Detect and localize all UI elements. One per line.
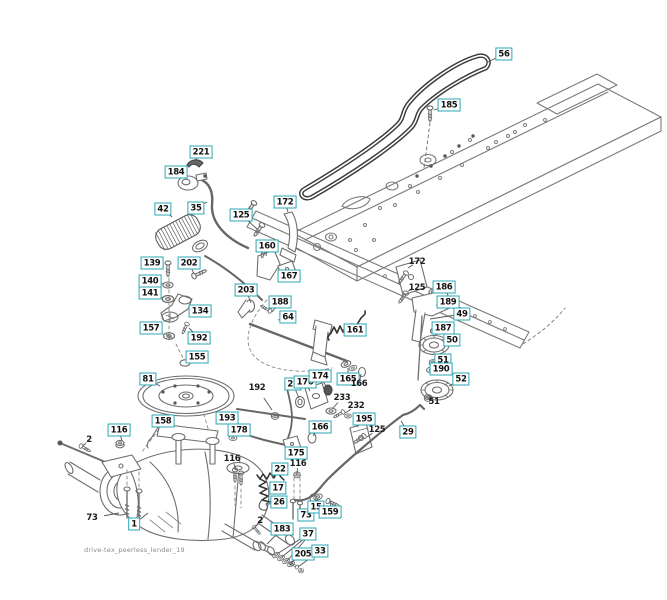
callout-192: 192 [249, 383, 266, 393]
callout-56[interactable]: 56 [495, 48, 512, 61]
callout-178[interactable]: 178 [228, 424, 251, 437]
callout-166[interactable]: 166 [309, 421, 332, 434]
callout-125[interactable]: 125 [230, 209, 253, 222]
callout-139[interactable]: 139 [141, 257, 164, 270]
callout-116[interactable]: 116 [108, 424, 131, 437]
callout-167[interactable]: 167 [278, 270, 301, 283]
callout-190[interactable]: 190 [430, 363, 453, 376]
callout-232: 232 [348, 401, 365, 411]
callout-26[interactable]: 26 [270, 496, 287, 509]
callout-125: 125 [409, 283, 426, 293]
callout-17[interactable]: 17 [269, 482, 286, 495]
callout-161[interactable]: 161 [344, 324, 367, 337]
callout-175[interactable]: 175 [285, 447, 308, 460]
callout-116: 116 [224, 454, 241, 464]
callout-81[interactable]: 81 [139, 373, 156, 386]
callout-192[interactable]: 192 [188, 332, 211, 345]
callout-157[interactable]: 157 [140, 322, 163, 335]
callout-141[interactable]: 141 [139, 287, 162, 300]
callout-160[interactable]: 160 [256, 240, 279, 253]
callout-195[interactable]: 195 [353, 413, 376, 426]
callout-33[interactable]: 33 [311, 545, 328, 558]
callout-50[interactable]: 50 [443, 334, 460, 347]
callout-203[interactable]: 203 [235, 284, 258, 297]
callout-166: 166 [351, 379, 368, 389]
callout-49[interactable]: 49 [453, 308, 470, 321]
callout-188[interactable]: 188 [269, 296, 292, 309]
callout-185[interactable]: 185 [438, 99, 461, 112]
callout-layer: 5618522118442351251721601672031886416113… [0, 0, 667, 600]
callout-1[interactable]: 1 [128, 518, 140, 531]
callout-186[interactable]: 186 [433, 281, 456, 294]
callout-184[interactable]: 184 [165, 166, 188, 179]
callout-174[interactable]: 174 [309, 370, 332, 383]
callout-29[interactable]: 29 [399, 426, 416, 439]
callout-155[interactable]: 155 [186, 351, 209, 364]
callout-2: 2 [257, 516, 263, 526]
callout-73: 73 [86, 513, 97, 523]
callout-2: 2 [86, 435, 92, 445]
callout-125: 125 [369, 425, 386, 435]
callout-64[interactable]: 64 [279, 311, 296, 324]
parts-diagram-page: 5618522118442351251721601672031886416113… [0, 0, 667, 600]
callout-159[interactable]: 159 [319, 506, 342, 519]
callout-35[interactable]: 35 [187, 202, 204, 215]
callout-134[interactable]: 134 [189, 305, 212, 318]
callout-183[interactable]: 183 [271, 523, 294, 536]
callout-22[interactable]: 22 [271, 463, 288, 476]
callout-172[interactable]: 172 [274, 196, 297, 209]
callout-37[interactable]: 37 [299, 528, 316, 541]
callout-221[interactable]: 221 [190, 146, 213, 159]
callout-51: 51 [428, 397, 439, 407]
callout-116: 116 [290, 459, 307, 469]
callout-172: 172 [409, 257, 426, 267]
callout-202[interactable]: 202 [178, 257, 201, 270]
callout-52[interactable]: 52 [452, 373, 469, 386]
callout-158[interactable]: 158 [152, 415, 175, 428]
callout-42[interactable]: 42 [154, 203, 171, 216]
diagram-footer-label: drive-tex_peerless_lender_19 [84, 546, 185, 554]
